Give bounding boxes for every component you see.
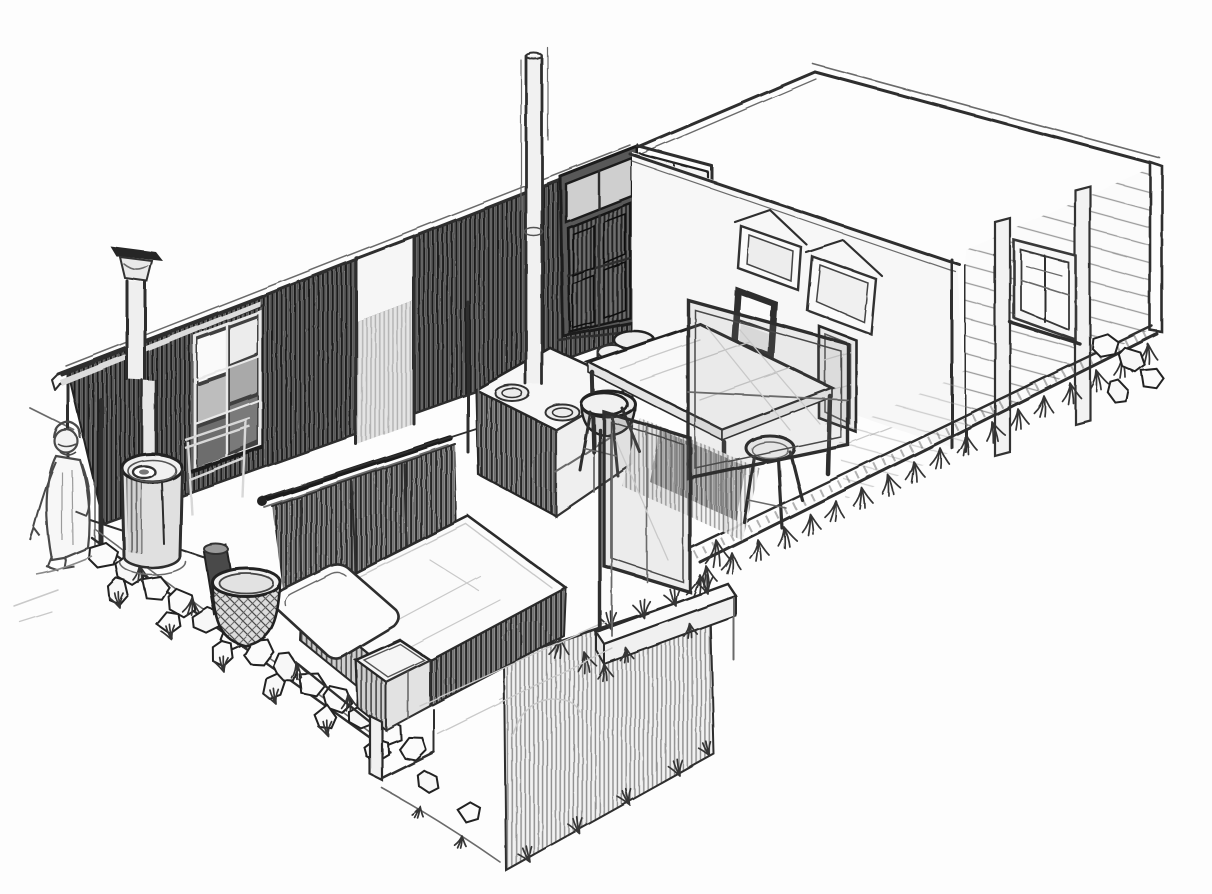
corner-post bbox=[1150, 162, 1162, 332]
burner-1 bbox=[495, 385, 529, 401]
wall-trim-left bbox=[995, 218, 1010, 456]
back-wall-doorway bbox=[356, 236, 414, 444]
sketch-page bbox=[0, 0, 1212, 894]
robe bbox=[47, 456, 90, 560]
barrel-stove bbox=[120, 454, 186, 575]
glass-panel-2 bbox=[604, 412, 690, 592]
burner-2 bbox=[545, 404, 579, 420]
head bbox=[55, 430, 78, 453]
left-door bbox=[560, 146, 637, 336]
back-wall-window bbox=[191, 312, 263, 472]
cabin-cutaway-sketch bbox=[0, 0, 1212, 894]
